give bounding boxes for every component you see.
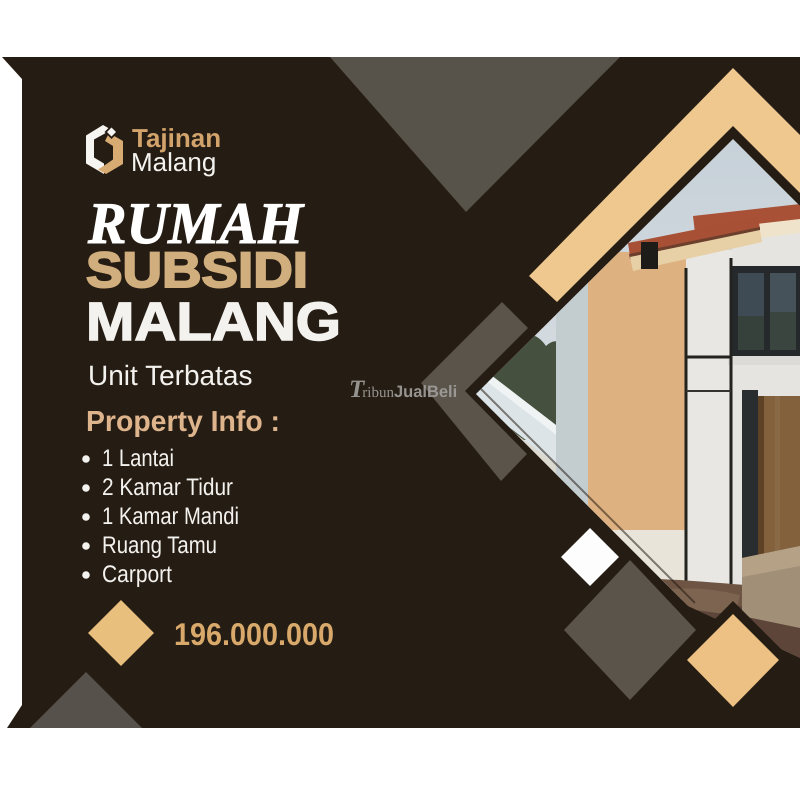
svg-text:MALANG: MALANG [86,292,341,352]
svg-text:1 Kamar Mandi: 1 Kamar Mandi [102,503,239,530]
svg-text:Carport: Carport [102,561,172,588]
svg-text:Unit Terbatas: Unit Terbatas [88,360,252,391]
svg-text:196.000.000: 196.000.000 [174,616,334,652]
svg-text:Malang: Malang [131,147,216,177]
svg-text:Property Info :: Property Info : [86,406,280,438]
svg-text:1 Lantai: 1 Lantai [102,445,174,472]
svg-text:Ruang Tamu: Ruang Tamu [102,532,217,559]
svg-text:2 Kamar Tidur: 2 Kamar Tidur [102,474,233,501]
svg-text:SUBSIDI: SUBSIDI [86,242,308,298]
